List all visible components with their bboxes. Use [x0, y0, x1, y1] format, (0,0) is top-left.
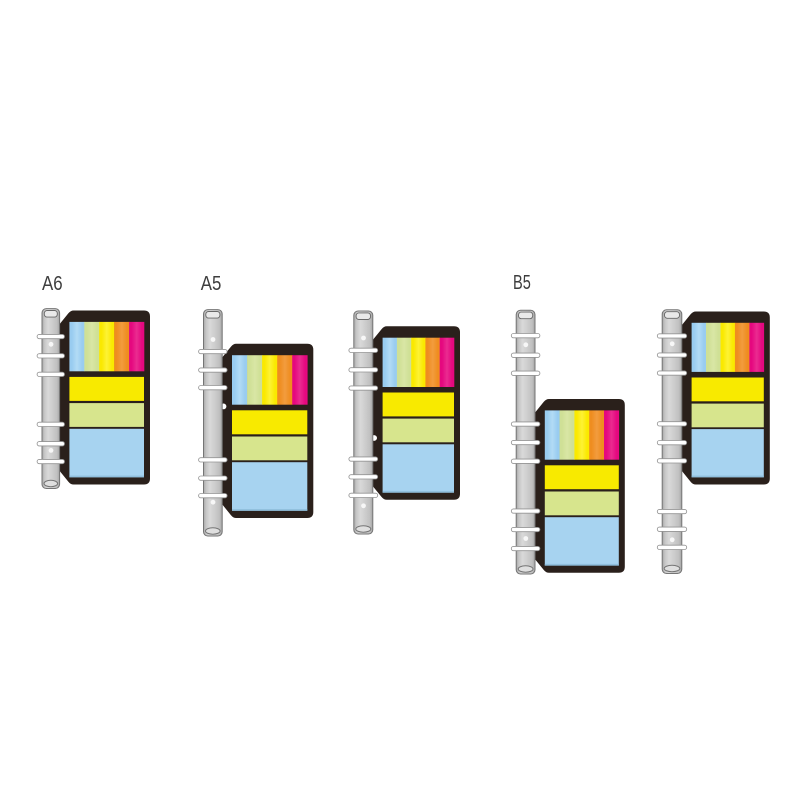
- svg-text:A6: A6: [42, 272, 63, 295]
- svg-text:B5: B5: [513, 271, 531, 294]
- svg-text:A5: A5: [201, 272, 222, 295]
